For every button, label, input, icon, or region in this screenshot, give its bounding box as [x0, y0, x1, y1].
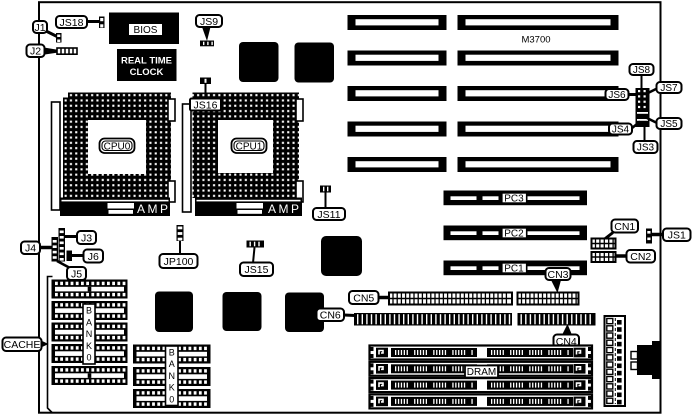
svg-text:B: B: [169, 348, 175, 358]
svg-text:JS9: JS9: [200, 16, 218, 28]
svg-text:AMP: AMP: [268, 202, 302, 216]
svg-text:JS3: JS3: [637, 143, 655, 154]
svg-text:J5: J5: [71, 268, 82, 280]
svg-text:PC3: PC3: [504, 193, 524, 204]
svg-text:K: K: [86, 341, 92, 351]
svg-text:AMP: AMP: [137, 202, 171, 216]
svg-text:CN3: CN3: [547, 269, 568, 281]
svg-text:JS5: JS5: [660, 119, 678, 130]
svg-text:N: N: [168, 371, 175, 381]
svg-text:REAL TIME: REAL TIME: [121, 56, 172, 67]
svg-text:0: 0: [86, 353, 91, 363]
svg-text:J6: J6: [88, 251, 99, 263]
svg-text:JP100: JP100: [164, 256, 194, 268]
svg-text:J3: J3: [81, 232, 92, 244]
svg-text:N: N: [86, 329, 93, 339]
svg-text:CACHE: CACHE: [4, 339, 41, 351]
svg-text:J2: J2: [30, 46, 41, 58]
svg-text:BIOS: BIOS: [134, 25, 158, 36]
svg-text:JS11: JS11: [317, 209, 340, 221]
svg-text:PC1: PC1: [504, 263, 524, 274]
svg-text:CN5: CN5: [353, 292, 374, 304]
svg-text:JS18: JS18: [60, 17, 84, 29]
svg-text:K: K: [169, 383, 175, 393]
svg-text:JS1: JS1: [668, 230, 686, 242]
svg-text:0: 0: [169, 394, 174, 404]
svg-text:CLOCK: CLOCK: [130, 67, 164, 78]
svg-text:DRAM: DRAM: [467, 367, 496, 378]
svg-text:CN6: CN6: [320, 310, 341, 322]
svg-text:A: A: [86, 317, 92, 327]
svg-text:J4: J4: [25, 243, 36, 255]
svg-text:PC2: PC2: [504, 228, 524, 239]
svg-text:B: B: [86, 306, 92, 316]
svg-text:J1: J1: [34, 22, 45, 34]
svg-text:JS15: JS15: [245, 264, 269, 276]
svg-text:CN1: CN1: [614, 221, 635, 233]
svg-text:CPU0: CPU0: [104, 141, 131, 152]
svg-text:JS7: JS7: [660, 83, 678, 94]
svg-text:M3700: M3700: [521, 35, 550, 46]
svg-text:JS8: JS8: [633, 65, 651, 76]
svg-text:JS6: JS6: [608, 90, 626, 101]
svg-text:CN2: CN2: [630, 251, 651, 263]
svg-text:JS4: JS4: [612, 125, 630, 136]
svg-text:JS16: JS16: [194, 99, 218, 111]
svg-text:CPU1: CPU1: [236, 141, 263, 152]
svg-text:A: A: [169, 359, 175, 369]
